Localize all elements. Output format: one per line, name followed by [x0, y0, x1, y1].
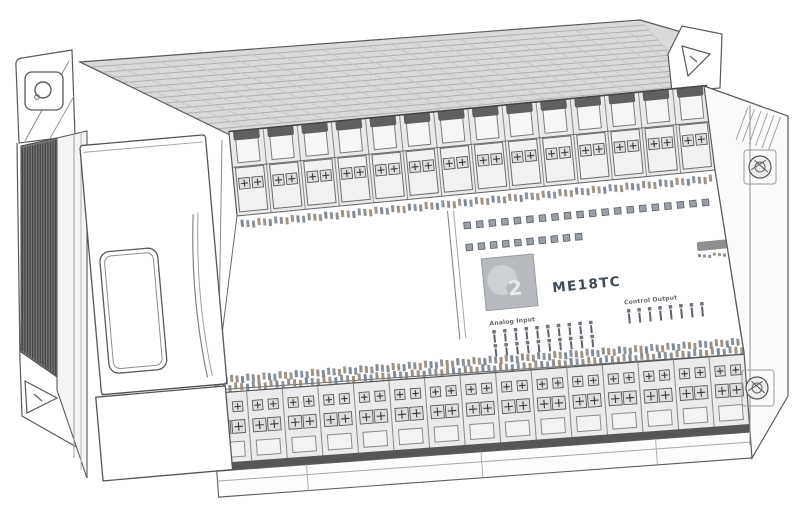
label-text-noise [305, 377, 309, 384]
label-text-noise [375, 372, 379, 379]
terminal-screw [375, 164, 387, 176]
label-text-noise [661, 345, 665, 352]
terminal-screw [252, 176, 264, 188]
screw-slot [688, 137, 689, 144]
wire-clamp [719, 405, 744, 422]
screw-slot [564, 149, 565, 156]
label-text-noise [664, 352, 668, 359]
terminal-screw [559, 147, 571, 159]
label-text-noise [564, 352, 568, 359]
terminal-screw [593, 143, 605, 155]
terminal-screw [481, 383, 492, 394]
label-text-noise [467, 359, 471, 366]
screw-slot [630, 394, 631, 402]
label-text-noise [332, 368, 336, 375]
label-text-noise [639, 346, 643, 353]
terminal-screw [627, 140, 639, 152]
label-text-noise [628, 355, 632, 362]
output-channel-mark [637, 308, 641, 312]
label-text-noise [521, 353, 525, 360]
label-text-noise [369, 375, 373, 382]
label-text-noise [612, 349, 616, 356]
screw-slot [381, 167, 382, 174]
label-text-noise [666, 343, 670, 350]
label-text-noise [698, 254, 701, 257]
label-text-noise [723, 253, 726, 256]
status-led [664, 203, 671, 210]
label-text-noise [440, 369, 444, 376]
screw-slot [701, 136, 702, 143]
terminal-screw [661, 137, 673, 149]
terminal-screw [648, 138, 660, 150]
status-led [527, 238, 534, 245]
screw-slot [594, 396, 595, 404]
label-text-noise [343, 366, 347, 373]
label-text-noise [262, 372, 266, 379]
label-text-noise [645, 346, 649, 353]
status-led [614, 207, 621, 214]
terminal-screw [572, 376, 583, 387]
terminal-screw [512, 151, 524, 163]
label-text-noise [358, 373, 362, 380]
terminal-screw [546, 148, 558, 160]
terminal-screw [324, 413, 338, 427]
label-text-noise [672, 343, 676, 350]
input-channel-mark [558, 338, 562, 342]
terminal-screw [395, 389, 406, 400]
status-led [577, 211, 584, 218]
label-text-noise [264, 382, 268, 389]
label-text-noise [348, 367, 352, 374]
screw-slot [346, 170, 347, 177]
terminal-screw [388, 163, 400, 175]
terminal-screw [608, 392, 622, 406]
label-text-noise [593, 357, 597, 364]
end-cap-screw [746, 377, 768, 399]
screw-slot [551, 150, 552, 157]
terminal-screw [430, 387, 441, 398]
label-text-noise [487, 365, 491, 372]
input-channel-mark [567, 323, 571, 327]
terminal-screw [354, 166, 366, 178]
label-text-noise [446, 367, 450, 374]
terminal-screw [267, 417, 281, 431]
screw-slot [345, 414, 346, 422]
terminal-screw [659, 370, 670, 381]
mounting-hole-frame [25, 72, 63, 110]
label-text-noise [235, 375, 239, 382]
status-led [466, 244, 473, 251]
input-channel-mark [524, 327, 528, 331]
label-text-noise [552, 359, 556, 366]
label-text-noise [281, 381, 285, 388]
status-led [627, 206, 634, 213]
label-text-noise [640, 353, 644, 360]
label-text-noise [416, 370, 420, 377]
status-led [539, 215, 546, 222]
screw-slot [360, 169, 361, 176]
wire-clamp [648, 410, 673, 427]
screw-slot [508, 402, 509, 410]
label-text-noise [322, 376, 326, 383]
label-text-noise [478, 358, 482, 365]
wire-clamp [683, 407, 708, 424]
terminal-screw [679, 368, 690, 379]
terminal-screw [303, 396, 314, 407]
screw-slot [415, 163, 416, 170]
label-text-noise [703, 254, 706, 257]
label-text-noise [591, 349, 595, 356]
label-text-noise [316, 369, 320, 376]
screw-slot [736, 386, 737, 394]
screw-slot [599, 146, 600, 153]
screw-slot [259, 421, 260, 429]
label-text-noise [704, 341, 708, 348]
input-channel-mark [504, 343, 508, 347]
label-text-noise [677, 344, 681, 351]
wire-clamp [434, 425, 459, 442]
label-text-noise [585, 349, 589, 356]
terminal-screw [715, 366, 726, 377]
label-text-noise [328, 377, 332, 384]
wire-clamp [470, 423, 495, 440]
label-text-noise [675, 350, 679, 357]
label-text-noise [481, 364, 485, 371]
input-channel-mark [536, 340, 540, 344]
label-text-noise [381, 373, 385, 380]
label-text-noise [472, 357, 476, 364]
screw-slot [722, 387, 723, 395]
label-text-noise [429, 361, 433, 368]
label-text-noise [462, 359, 466, 366]
label-text-noise [655, 344, 659, 351]
screw-slot [366, 413, 367, 421]
wire-clamp [399, 428, 424, 445]
terminal-screw [695, 367, 706, 378]
label-text-noise [278, 371, 282, 378]
label-text-noise [718, 253, 721, 256]
label-text-noise [381, 365, 385, 372]
terminal-screw [457, 156, 469, 168]
output-channel-mark [700, 302, 704, 306]
label-text-noise [299, 380, 303, 387]
screw-slot [326, 172, 327, 179]
label-text-noise [284, 372, 288, 379]
label-text-noise [393, 371, 397, 378]
label-text-noise [452, 367, 456, 374]
input-channel-mark [557, 324, 561, 328]
label-text-noise [252, 381, 256, 388]
label-text-noise [526, 354, 530, 361]
screw-slot [496, 156, 497, 163]
screw-slot [667, 139, 668, 146]
label-text-noise [230, 375, 234, 382]
label-text-noise [228, 385, 232, 392]
terminal-screw [623, 391, 637, 405]
label-text-noise [268, 373, 272, 380]
label-text-noise [402, 364, 406, 371]
screw-head [746, 377, 768, 399]
lower-compartment [96, 386, 233, 481]
label-text-noise [693, 349, 697, 356]
label-text-noise [317, 378, 321, 385]
label-text-noise [534, 360, 538, 367]
screw-slot [402, 410, 403, 418]
label-text-noise [607, 348, 611, 355]
screw-slot [483, 157, 484, 164]
label-text-noise [469, 366, 473, 373]
input-channel-mark [492, 330, 496, 334]
terminal-screw [410, 406, 424, 420]
label-text-noise [493, 365, 497, 372]
label-text-noise [273, 374, 277, 381]
label-text-noise [599, 358, 603, 365]
screw-slot [585, 147, 586, 154]
label-text-noise [698, 340, 702, 347]
brand-logo-digit: 2 [507, 275, 523, 300]
label-text-noise [435, 362, 439, 369]
end-cap-screw [749, 156, 771, 178]
screw-slot [312, 173, 313, 180]
terminal-screw [374, 409, 388, 423]
input-channel-mark [493, 344, 497, 348]
status-led [564, 212, 571, 219]
terminal-screw [303, 414, 317, 428]
wire-clamp [541, 418, 566, 435]
input-channel-mark [515, 342, 519, 346]
label-text-noise [311, 369, 315, 376]
label-text-noise [516, 362, 520, 369]
screw-slot [278, 177, 279, 184]
output-channel-mark [679, 304, 683, 308]
label-text-noise [257, 375, 261, 382]
terminal-screw [307, 171, 319, 183]
label-text-noise [717, 348, 721, 355]
terminal-screw [730, 365, 741, 376]
label-text-noise [618, 346, 622, 353]
status-led [689, 200, 696, 207]
terminal-screw [624, 372, 635, 383]
label-text-noise [295, 370, 299, 377]
output-channel-mark [627, 309, 631, 313]
label-text-noise [234, 382, 238, 389]
status-led [464, 222, 471, 229]
terminal-screw [644, 371, 655, 382]
status-led [551, 213, 558, 220]
terminal-screw [481, 401, 495, 415]
status-led [490, 241, 497, 248]
label-text-noise [728, 346, 732, 353]
terminal-screw [359, 392, 370, 403]
input-channel-mark [546, 325, 550, 329]
terminal-screw [338, 412, 352, 426]
wire-clamp [363, 431, 388, 448]
label-text-noise [634, 345, 638, 352]
label-text-noise [428, 368, 432, 375]
label-text-noise [352, 376, 356, 383]
label-text-noise [386, 365, 390, 372]
screw-slot [558, 399, 559, 407]
terminal-screw [501, 381, 512, 392]
screw-head [749, 156, 771, 178]
label-text-noise [375, 364, 379, 371]
label-text-noise [587, 357, 591, 364]
screw-slot [517, 154, 518, 161]
screw-slot [523, 401, 524, 409]
input-channel-mark [535, 326, 539, 330]
label-text-noise [252, 374, 256, 381]
terminal-screw [232, 401, 243, 412]
wire-clamp [292, 436, 317, 453]
input-channel-mark [589, 321, 593, 325]
label-text-noise [499, 363, 503, 370]
label-text-noise [681, 351, 685, 358]
status-led [489, 219, 496, 226]
label-text-noise [311, 378, 315, 385]
label-text-noise [629, 347, 633, 354]
status-led [514, 239, 521, 246]
input-channel-mark [503, 329, 507, 333]
label-text-noise [258, 382, 262, 389]
screw-slot [665, 391, 666, 399]
label-text-noise [682, 342, 686, 349]
label-text-noise [387, 373, 391, 380]
label-text-noise [670, 352, 674, 359]
label-text-noise [445, 360, 449, 367]
label-text-noise [346, 375, 350, 382]
label-text-noise [463, 366, 467, 373]
label-text-noise [528, 363, 532, 370]
terminal-screw [466, 402, 480, 416]
output-channel-mark [658, 306, 662, 310]
label-text-noise [688, 342, 692, 349]
screw-slot [651, 392, 652, 400]
label-text-noise [391, 363, 395, 370]
label-text-noise [575, 358, 579, 365]
terminal-screw [580, 145, 592, 157]
label-text-noise [650, 344, 654, 351]
label-text-noise [542, 353, 546, 360]
label-text-noise [505, 364, 509, 371]
terminal-screw [339, 393, 350, 404]
label-text-noise [731, 338, 735, 345]
input-channel-mark [526, 341, 530, 345]
terminal-screw [422, 160, 434, 172]
label-text-noise [340, 375, 344, 382]
status-led [702, 199, 709, 206]
terminal-screw [587, 393, 601, 407]
wire-clamp [327, 433, 352, 450]
screw-slot [437, 408, 438, 416]
label-text-noise [289, 372, 293, 379]
terminal-screw [573, 394, 587, 408]
label-text-noise [422, 371, 426, 378]
label-text-noise [596, 350, 600, 357]
plc-device-illustration: 2 ME18TC Analog Input Control Output [0, 0, 800, 520]
wire-clamp [576, 415, 601, 432]
terminal-screw [516, 399, 530, 413]
label-text-noise [424, 361, 428, 368]
label-text-noise [334, 377, 338, 384]
status-led [575, 233, 582, 240]
label-text-noise [652, 354, 656, 361]
terminal-screw [552, 396, 566, 410]
label-text-noise [327, 368, 331, 375]
terminal-screw [588, 375, 599, 386]
terminal-screw [715, 384, 729, 398]
label-text-noise [605, 355, 609, 362]
screw-slot [544, 400, 545, 408]
label-text-noise [715, 339, 719, 346]
label-text-noise [705, 350, 709, 357]
label-text-noise [540, 361, 544, 368]
terminal-screw [286, 173, 298, 185]
terminal-screw [409, 161, 421, 173]
label-text-noise [483, 358, 487, 365]
label-text-noise [456, 358, 460, 365]
label-text-noise [411, 370, 415, 377]
label-text-noise [720, 340, 724, 347]
screw-slot [257, 179, 258, 186]
screw-slot [615, 395, 616, 403]
label-text-noise [300, 371, 304, 378]
bottom-tab-triangle-hole [25, 381, 57, 413]
screw-slot [701, 388, 702, 396]
label-text-noise [611, 356, 615, 363]
label-text-noise [646, 353, 650, 360]
label-text-noise [634, 355, 638, 362]
label-text-noise [397, 363, 401, 370]
label-text-noise [602, 347, 606, 354]
door-window-frame [99, 247, 167, 374]
screw-slot [487, 404, 488, 412]
label-text-noise [413, 362, 417, 369]
label-text-noise [580, 351, 584, 358]
front-access-door [74, 135, 235, 481]
screw-slot [428, 162, 429, 169]
terminal-screw [253, 418, 267, 432]
label-text-noise [569, 358, 573, 365]
terminal-screw [341, 168, 353, 180]
screw-slot [295, 418, 296, 426]
label-text-noise [511, 364, 515, 371]
label-text-noise [622, 354, 626, 361]
label-text-noise [246, 384, 250, 391]
label-text-noise [553, 351, 557, 358]
screw-slot [579, 397, 580, 405]
screw-slot [381, 412, 382, 420]
label-text-noise [537, 352, 541, 359]
terminal-screw [517, 380, 528, 391]
label-text-noise [240, 383, 244, 390]
terminal-screw [252, 400, 263, 411]
label-text-noise [569, 350, 573, 357]
terminal-screw [608, 374, 619, 385]
status-led [501, 218, 508, 225]
label-text-noise [354, 368, 358, 375]
label-text-noise [575, 350, 579, 357]
label-text-noise [699, 349, 703, 356]
label-text-noise [623, 347, 627, 354]
terminal-screw [323, 394, 334, 405]
status-led [589, 210, 596, 217]
label-text-noise [708, 255, 711, 258]
input-channel-mark [569, 337, 573, 341]
label-text-noise [558, 352, 562, 359]
terminal-screw [446, 385, 457, 396]
screw-slot [238, 422, 239, 430]
status-led [478, 243, 485, 250]
